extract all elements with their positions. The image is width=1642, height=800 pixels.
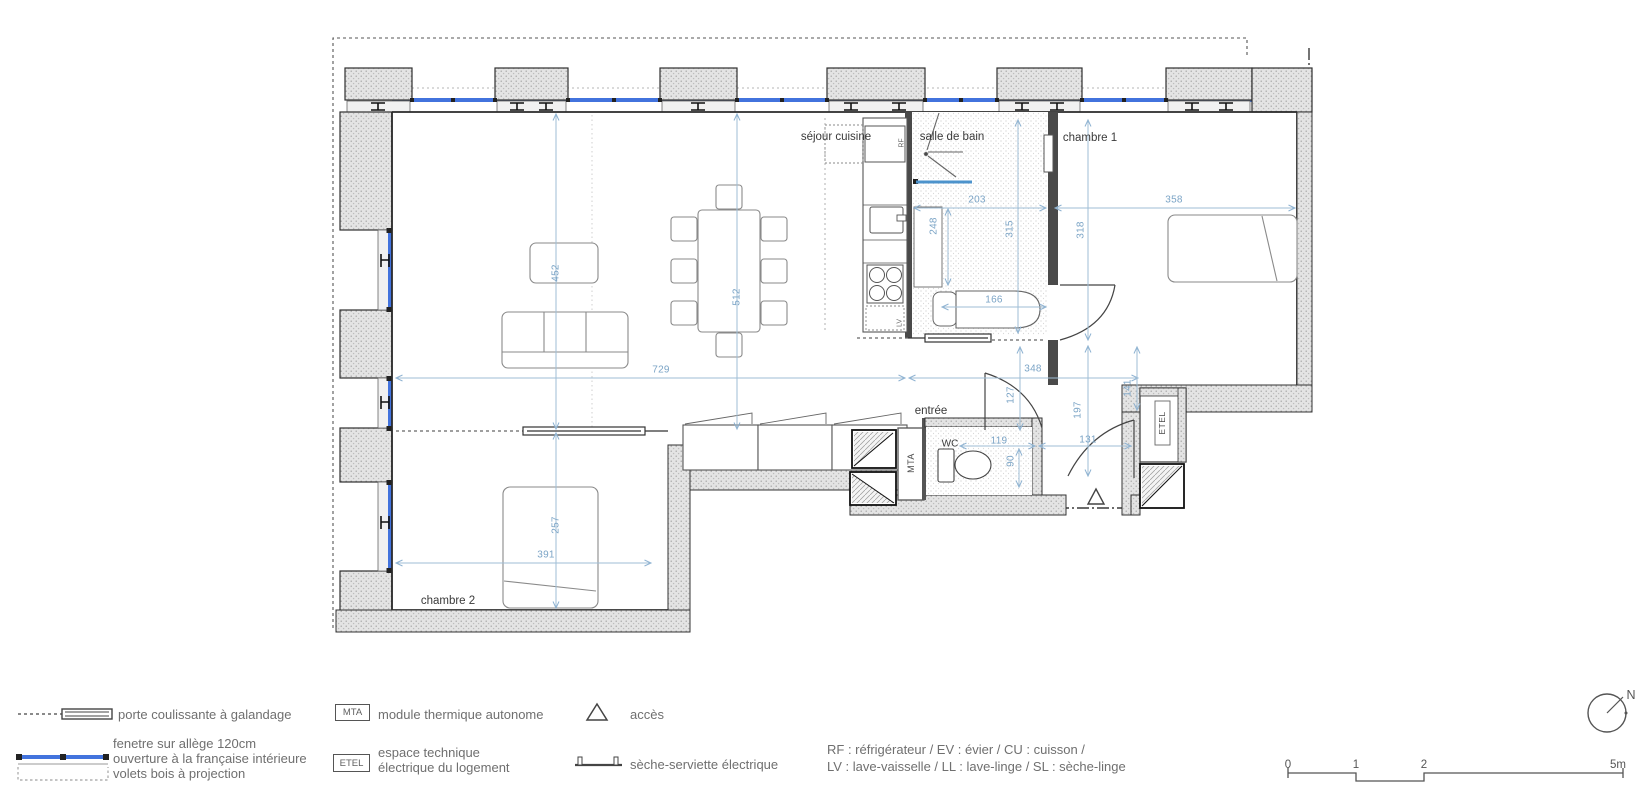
coffee-table: [530, 243, 598, 283]
washbasin: [933, 292, 957, 326]
bathroom-sliding-door: [857, 334, 1046, 342]
legend-etel-key: ETEL: [333, 754, 370, 772]
room-label-bedroom1: chambre 1: [1063, 132, 1117, 144]
sofa: [502, 312, 628, 368]
living-furniture: [502, 185, 787, 368]
room-label-entry: entrée: [915, 405, 948, 417]
legend-mta-key: MTA: [335, 704, 370, 721]
dim-hall-right: 141: [1123, 379, 1134, 397]
scale-tick-5m: 5m: [1610, 759, 1626, 771]
fridge-tag: RF: [899, 138, 906, 147]
dim-wc-depth: 90: [1006, 455, 1017, 467]
facade-piers: [345, 68, 1312, 112]
dim-bedroom1-width: 358: [1165, 195, 1183, 206]
bed2: [503, 487, 598, 608]
north-label: N: [1626, 688, 1635, 702]
north-facade-wall: [345, 68, 1312, 112]
entry-south-jamb: [1131, 495, 1140, 515]
technical-shafts: [850, 430, 896, 505]
dim-bedroom1-height: 318: [1076, 221, 1087, 239]
dim-dining-vertical: 512: [732, 288, 743, 306]
dim-hall-upper: 127: [1006, 386, 1017, 404]
legend-abbrev-line1: RF : réfrigérateur / EV : évier / CU : c…: [827, 742, 1085, 757]
dishwasher-tag: LV: [897, 319, 904, 327]
etel-shaft: [1140, 464, 1184, 508]
legend-sliding-door-label: porte coulissante à galandage: [118, 707, 291, 722]
dim-bath-width: 203: [968, 195, 986, 206]
dim-corridor-right: 348: [1024, 364, 1042, 375]
wc-east-wall: [1032, 418, 1042, 495]
dim-bedroom2-height: 257: [551, 516, 562, 534]
scale-bar: [1288, 768, 1623, 781]
legend-window-symbol: [16, 754, 109, 780]
legend-etel-line2: électrique du logement: [378, 760, 510, 775]
east-wall: [1297, 112, 1312, 385]
wardrobe-door-flaps: [685, 413, 901, 424]
legend-towel-label: sèche-serviette électrique: [630, 757, 778, 772]
scale-tick-1: 1: [1353, 759, 1359, 771]
legend-access-triangle-icon: [587, 704, 607, 720]
legend-access-label: accès: [630, 707, 664, 722]
dim-bath-lower: 166: [985, 295, 1003, 306]
toilet: [938, 449, 991, 482]
legend-towel-dryer-icon: [575, 757, 622, 765]
facade-sills: [347, 101, 1250, 112]
west-facade-wall: [340, 112, 392, 612]
legend-mta-label: module thermique autonome: [378, 707, 544, 722]
etel-closet: [1140, 388, 1186, 508]
legend-etel-line1: espace technique: [378, 745, 480, 760]
dim-corridor-left: 729: [652, 365, 670, 376]
room-label-wc: WC: [942, 439, 959, 450]
dim-hall-mid: 197: [1073, 401, 1084, 419]
dim-bath-height: 315: [1005, 220, 1016, 238]
bedroom2-sliding-door: [396, 427, 668, 435]
dim-hall-lower: 131: [1079, 435, 1097, 446]
mta-wc-wall: [922, 418, 926, 500]
legend-window-line1: fenetre sur allège 120cm: [113, 736, 256, 751]
north-arrow-icon: [1588, 694, 1628, 732]
access-triangle-icon: [1088, 489, 1104, 504]
mta-tag: MTA: [906, 453, 916, 473]
dim-living-vertical: 452: [551, 264, 562, 282]
wc-north-wall: [925, 418, 1035, 427]
plot-boundary-dashed: [333, 38, 1247, 628]
bedroom2-east-wall: [668, 445, 690, 632]
scale-tick-0: 0: [1285, 759, 1291, 771]
legend-window-line3: volets bois à projection: [113, 766, 245, 781]
perimeter-wall-bands: [336, 112, 1312, 632]
bed1: [1168, 215, 1297, 282]
scale-tick-2: 2: [1421, 759, 1427, 771]
legend-window-line2: ouverture à la française intérieure: [113, 751, 307, 766]
legend-abbrev-line2: LV : lave-vaisselle / LL : lave-linge / …: [827, 759, 1126, 774]
room-label-bath: salle de bain: [920, 131, 985, 143]
cooktop: [867, 265, 903, 303]
room-label-bedroom2: chambre 2: [421, 595, 475, 607]
room-label-living: séjour cuisine: [801, 131, 871, 143]
dining-table: [698, 210, 760, 332]
faucet-icon: [897, 215, 906, 221]
dim-bath-counter: 248: [929, 217, 940, 235]
floor-plan-page: séjour cuisine salle de bain chambre 1 c…: [0, 0, 1642, 800]
etel-tag: ETEL: [1157, 411, 1167, 434]
dim-wc-width: 119: [991, 436, 1008, 447]
radiator: [1044, 135, 1053, 172]
west-window-1: [388, 230, 392, 310]
floor-plan-drawing: [0, 0, 1642, 800]
dim-bedroom2-width: 391: [537, 550, 555, 561]
legend-sliding-door-symbol: [18, 709, 112, 719]
bedroom2-south-wall: [336, 610, 690, 632]
